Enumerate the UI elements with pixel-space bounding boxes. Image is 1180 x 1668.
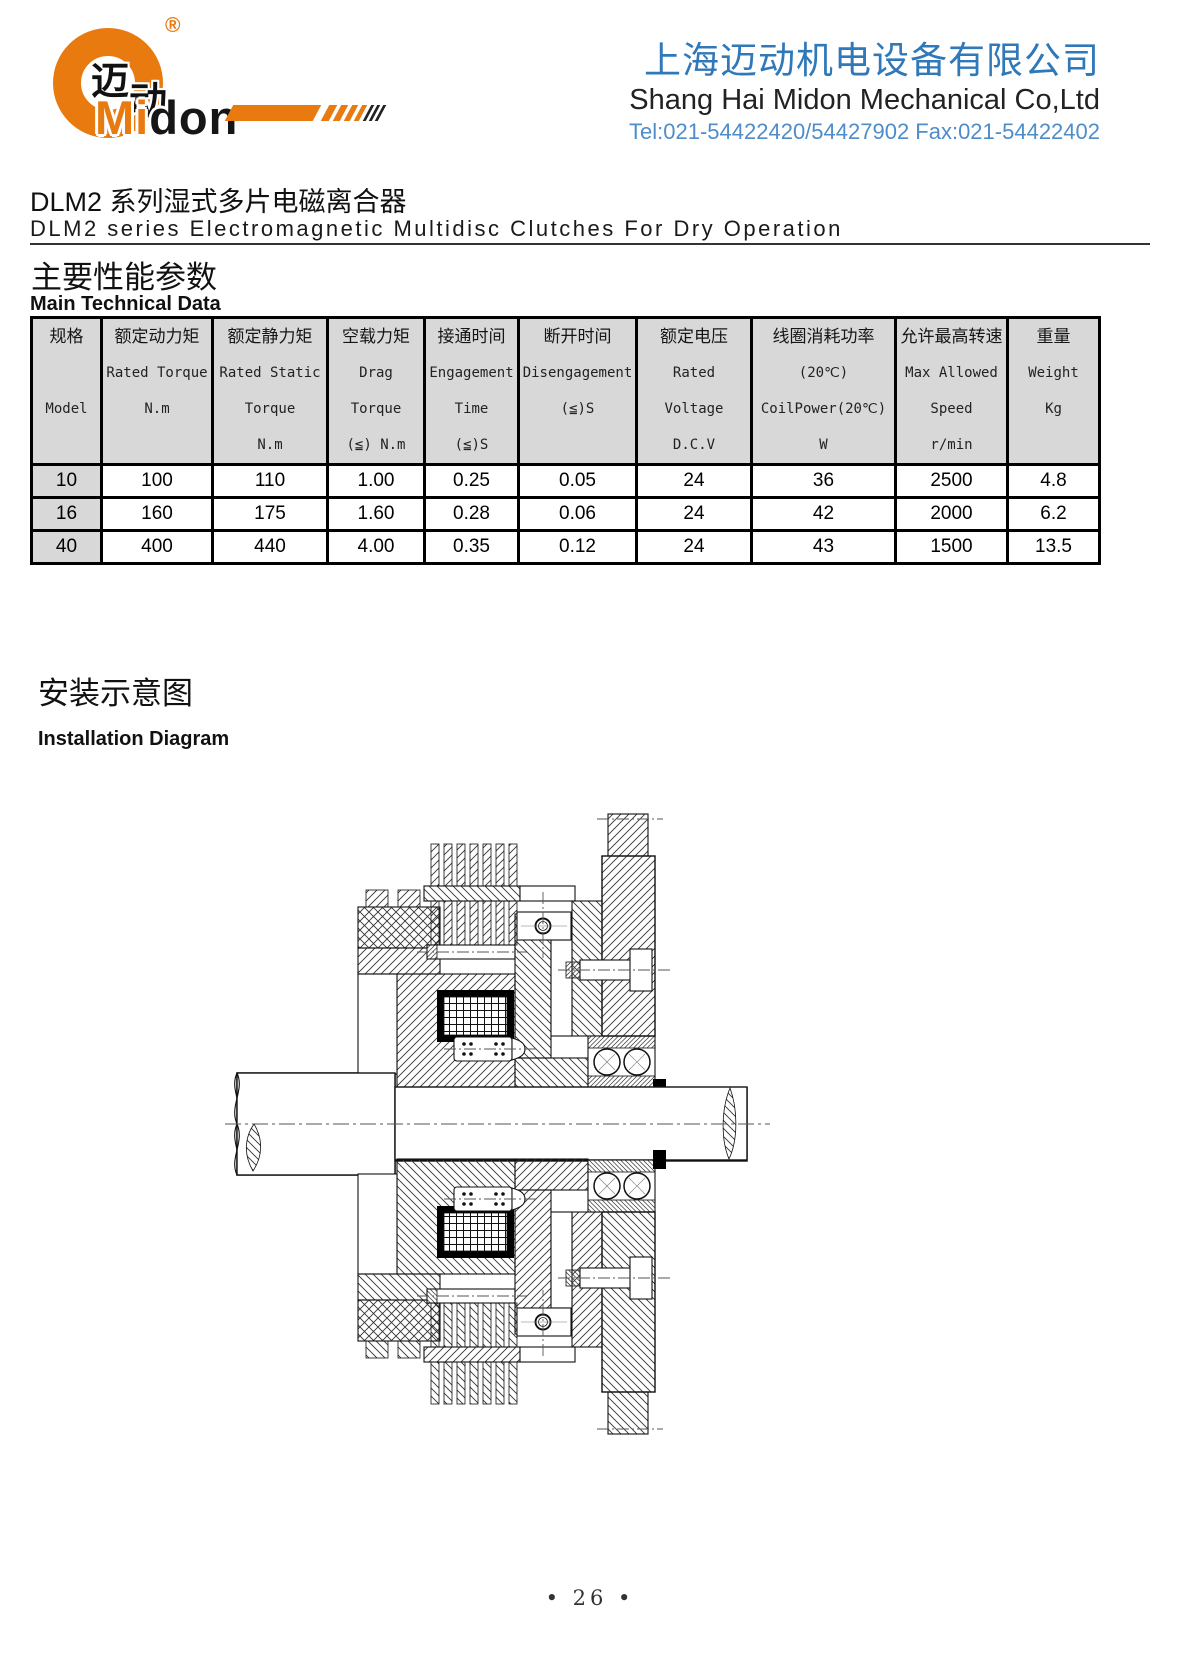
table-cell: 0.06 [519, 498, 637, 531]
section-params-title-en: Main Technical Data [30, 293, 221, 316]
table-cell: 16 [32, 498, 102, 531]
table-cell: 43 [752, 531, 896, 564]
yoke-air-gap [358, 974, 397, 1074]
table-cell: 440 [213, 531, 328, 564]
product-title-cn: DLM2 系列湿式多片电磁离合器 [30, 180, 407, 219]
table-cell: 6.2 [1008, 498, 1100, 531]
table-cell: 13.5 [1008, 531, 1100, 564]
coil-winding [444, 997, 507, 1035]
rivet-dot [462, 1042, 466, 1046]
table-cell: 1.00 [328, 465, 425, 498]
table-cell: 10 [32, 465, 102, 498]
bearing-inner-race [588, 1076, 655, 1088]
friction-disc [457, 901, 465, 945]
catalog-page: { "header": { "logo": { "cn1": "迈", "cn2… [0, 0, 1180, 1668]
spline-fin [483, 844, 491, 886]
rivet-dot [494, 1052, 498, 1056]
table-cell: 2000 [896, 498, 1008, 531]
table-cell: 4.8 [1008, 465, 1100, 498]
disc-carrier-cap [424, 886, 520, 901]
rivet-dot [494, 1042, 498, 1046]
flange-plate [602, 856, 655, 1036]
header-cell-coil-power: 线圈消耗功率(20℃)CoilPower(20℃)W [752, 318, 896, 465]
friction-disc [444, 901, 452, 945]
contact-line: Tel:021-54422420/54427902 Fax:021-544224… [580, 118, 1100, 146]
spec-table: 规格Model 额定动力矩Rated TorqueN.m 额定静力矩Rated … [30, 316, 1101, 565]
header-cell-disengagement-time: 断开时间Disengagement(≦)S [519, 318, 637, 465]
spline-fin [496, 844, 504, 886]
table-cell: 24 [637, 465, 752, 498]
table-row: 16 160 175 1.60 0.28 0.06 24 42 2000 6.2 [32, 498, 1100, 531]
flange-tab [608, 814, 648, 856]
yoke-tab [366, 890, 388, 907]
table-cell: 110 [213, 465, 328, 498]
table-cell: 42 [752, 498, 896, 531]
shaft-sleeve [515, 1058, 588, 1089]
brand-don: don [149, 91, 238, 144]
table-cell: 400 [102, 531, 213, 564]
rivet-pin-body [454, 1037, 512, 1061]
table-cell: 24 [637, 531, 752, 564]
rivet-dot [469, 1042, 473, 1046]
section-install-title-cn: 安装示意图 [38, 668, 193, 713]
table-cell: 0.35 [425, 531, 519, 564]
table-cell: 0.12 [519, 531, 637, 564]
bearing-outer-race [588, 1036, 655, 1048]
table-cell: 36 [752, 465, 896, 498]
header-cell-static-torque: 额定静力矩Rated StaticTorqueN.m [213, 318, 328, 465]
friction-disc [431, 901, 439, 945]
table-cell: 160 [102, 498, 213, 531]
table-cell: 0.28 [425, 498, 519, 531]
table-cell: 4.00 [328, 531, 425, 564]
table-row: 40 400 440 4.00 0.35 0.12 24 43 1500 13.… [32, 531, 1100, 564]
brand-mi: Mi [95, 91, 149, 144]
header-cell-rated-torque: 额定动力矩Rated TorqueN.m [102, 318, 213, 465]
yoke-tab [398, 890, 420, 907]
table-cell: 100 [102, 465, 213, 498]
rivet-dot [501, 1042, 505, 1046]
header-cell-max-speed: 允许最高转速Max AllowedSpeedr/min [896, 318, 1008, 465]
header-cell-drag-torque: 空载力矩DragTorque(≦) N.m [328, 318, 425, 465]
title-underline [30, 243, 1150, 245]
section-params-title-cn: 主要性能参数 [31, 252, 217, 297]
spline-fin [431, 844, 439, 886]
table-cell: 0.05 [519, 465, 637, 498]
table-cell: 24 [637, 498, 752, 531]
header-cell-model: 规格Model [32, 318, 102, 465]
header-cell-weight: 重量WeightKg [1008, 318, 1100, 465]
page-number: • 26 • [0, 1586, 1180, 1610]
field-yoke-crosshatch [358, 907, 440, 948]
company-name-cn: 上海迈动机电设备有限公司 [580, 40, 1100, 82]
logo-stripe [225, 105, 322, 121]
registered-mark: ® [165, 14, 180, 38]
table-cell: 2500 [896, 465, 1008, 498]
product-title-en: DLM2 series Electromagnetic Multidisc Cl… [30, 216, 843, 242]
rivet-dot [462, 1052, 466, 1056]
clutch-cross-section-diagram [225, 786, 770, 1446]
table-header-row: 规格Model 额定动力矩Rated TorqueN.m 额定静力矩Rated … [32, 318, 1100, 465]
friction-disc [483, 901, 491, 945]
spline-fin [509, 844, 517, 886]
spline-fin [444, 844, 452, 886]
cavity [551, 940, 572, 1036]
table-cell: 0.25 [425, 465, 519, 498]
table-cell: 175 [213, 498, 328, 531]
table-row: 10 100 110 1.00 0.25 0.05 24 36 2500 4.8 [32, 465, 1100, 498]
company-name-en: Shang Hai Midon Mechanical Co,Ltd [580, 82, 1100, 118]
section-install-title-en: Installation Diagram [38, 728, 229, 751]
rivet-dot [469, 1052, 473, 1056]
spline-fin [470, 844, 478, 886]
company-header: 上海迈动机电设备有限公司 Shang Hai Midon Mechanical … [580, 40, 1100, 146]
friction-disc [470, 901, 478, 945]
friction-disc [496, 901, 504, 945]
header-cell-rated-voltage: 额定电压RatedVoltageD.C.V [637, 318, 752, 465]
company-logo: ® 迈 动 Midon [45, 6, 425, 146]
header-cell-engagement-time: 接通时间EngagementTime(≦)S [425, 318, 519, 465]
table-cell: 40 [32, 531, 102, 564]
rivet-dot [501, 1052, 505, 1056]
carrier-cap-extension [520, 886, 575, 901]
brand-wordmark: Midon [95, 90, 238, 145]
diagram-lower-half [235, 1073, 747, 1434]
spline-fin [457, 844, 465, 886]
table-cell: 1500 [896, 531, 1008, 564]
table-cell: 1.60 [328, 498, 425, 531]
